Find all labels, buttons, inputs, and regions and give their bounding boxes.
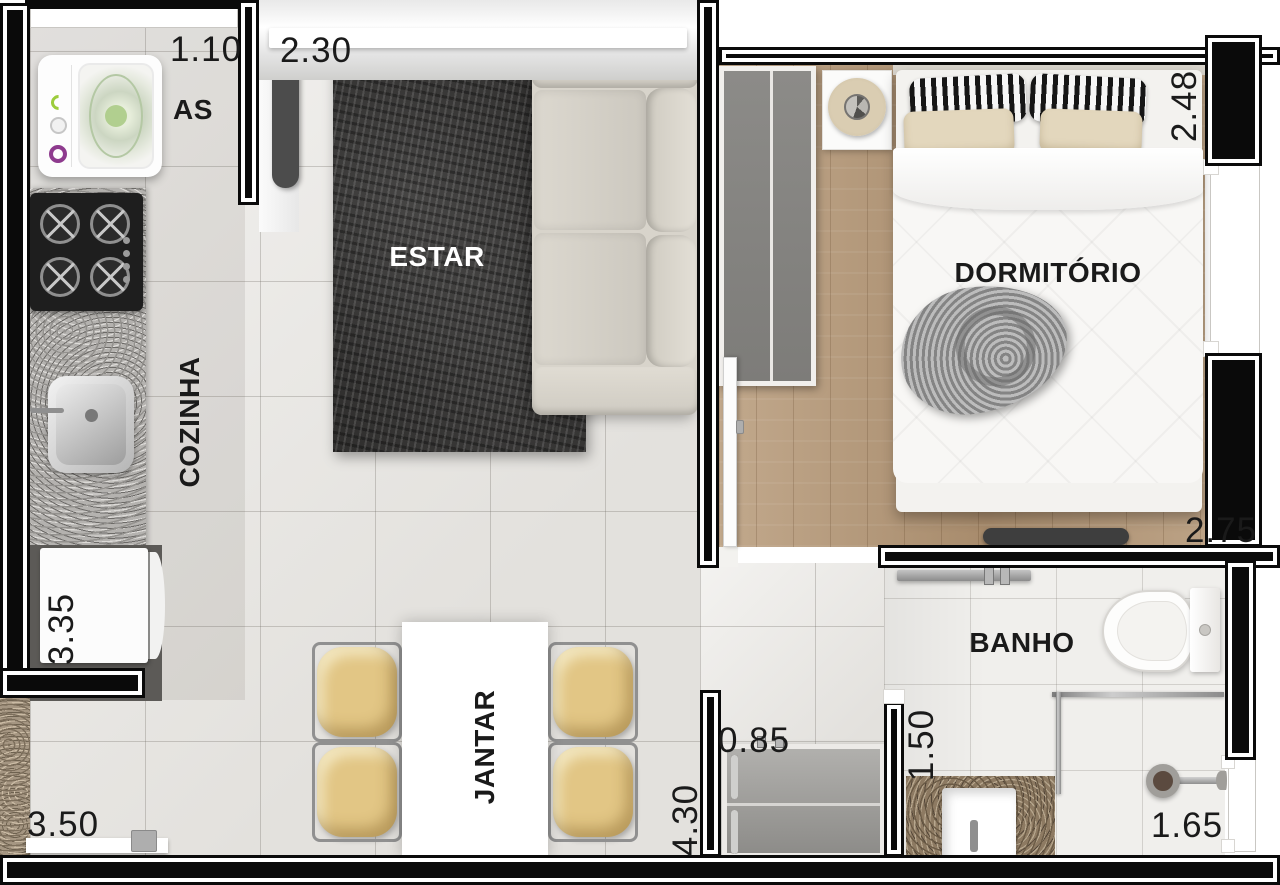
hall-closet [722,744,885,858]
closet-shelf [727,803,880,806]
door-handle-icon [736,420,744,434]
window-latch-icon [131,830,157,852]
door-track-clip-icon [1000,566,1010,585]
living-bedroom-divider-wall [697,0,719,568]
table-lamp [828,78,886,136]
bottom-wall [0,855,1280,885]
measurement-estar-opening: 2.30 [278,32,354,68]
floor-plan: 1.10 2.30 2.48 3.35 2.75 3.50 4.30 0.85 … [0,0,1280,885]
room-label-as: AS [167,93,219,127]
measurement-sala-width: 3.50 [24,806,102,842]
bathroom-sliding-door-track [897,570,1031,581]
as-top-wall [25,0,240,9]
closet-clothes-row [731,755,876,799]
burner-icon [40,204,80,244]
toilet [1102,590,1196,672]
bed-foot-mat [983,528,1129,545]
kitchen-return-wall [0,668,145,698]
washer-dial-arc-icon [48,92,69,113]
kitchen-faucet [30,408,64,413]
sofa-back-cushion [646,235,696,367]
bathroom-faucet [970,820,978,852]
sofa-seat-cushion [534,233,646,365]
left-wall [0,3,30,697]
measurement-as-width: 1.10 [166,31,246,67]
measurement-banho-depth: 1.65 [1148,807,1226,843]
shower-arm-base [1216,771,1227,790]
dining-chair [553,647,633,737]
cooktop-knob-icon [123,250,130,257]
cooktop-knob-icon [123,263,130,270]
clothes-bar-icon [731,810,738,854]
dining-chair [553,747,633,837]
bathroom-sink [942,788,1016,858]
wardrobe [719,66,816,386]
cooktop-knob-icon [123,237,130,244]
sink-drain-icon [85,409,98,422]
washer-lid [78,63,154,169]
lamp-shade-icon [844,94,870,120]
bathroom-right-wall [1225,560,1256,760]
bedroom-top-wall [719,47,1280,65]
measurement-dormitorio-width: 2.48 [1166,68,1202,144]
sofa-back-cushion [646,88,696,232]
room-label-cozinha: COZINHA [175,360,205,484]
room-label-banho: BANHO [966,628,1078,658]
dining-chair [317,747,397,837]
door-track-clip-icon [984,566,994,585]
burner-icon [40,257,80,297]
wardrobe-clothes-column [728,75,768,377]
measurement-sala-depth: 4.30 [667,782,703,858]
shower-glass-panel [1056,692,1061,794]
room-label-estar: ESTAR [398,242,476,272]
sofa-seat-cushion [534,90,646,230]
room-label-jantar: JANTAR [470,691,500,803]
wardrobe-clothes-column [771,75,811,377]
closet-clothes-row [731,810,876,854]
as-window [30,9,238,28]
shower-head-icon [1146,764,1180,798]
measurement-cozinha-depth: 3.35 [43,591,79,667]
cooktop-knob-icon [123,276,130,283]
washer-knob-icon [50,117,67,134]
measurement-banho-width: 1.50 [903,707,939,783]
measurement-dormitorio-depth: 2.75 [1182,512,1260,548]
bedroom-window [1210,160,1260,356]
bedroom-right-wall-upper [1205,35,1262,166]
hall-right-wall-stub [884,702,904,857]
cooktop [30,193,143,311]
sofa-armrest [532,367,698,415]
sofa [532,40,698,415]
shower-glass-panel [1052,692,1224,697]
washing-machine [38,55,162,177]
room-label-dormitorio: DORMITÓRIO [952,258,1144,288]
bedroom-door-leaf [723,357,737,547]
wall-end-cap [884,690,904,703]
dining-chair [317,647,397,737]
measurement-closet-width: 0.85 [716,722,792,758]
sink-bowl [56,384,126,465]
flush-button-icon [1199,624,1211,636]
washer-ring-knob-icon [49,145,67,163]
kitchen-sink [48,376,134,473]
clothes-bar-icon [731,755,738,799]
washer-control-panel [44,65,72,167]
bathroom-window [1228,756,1256,852]
